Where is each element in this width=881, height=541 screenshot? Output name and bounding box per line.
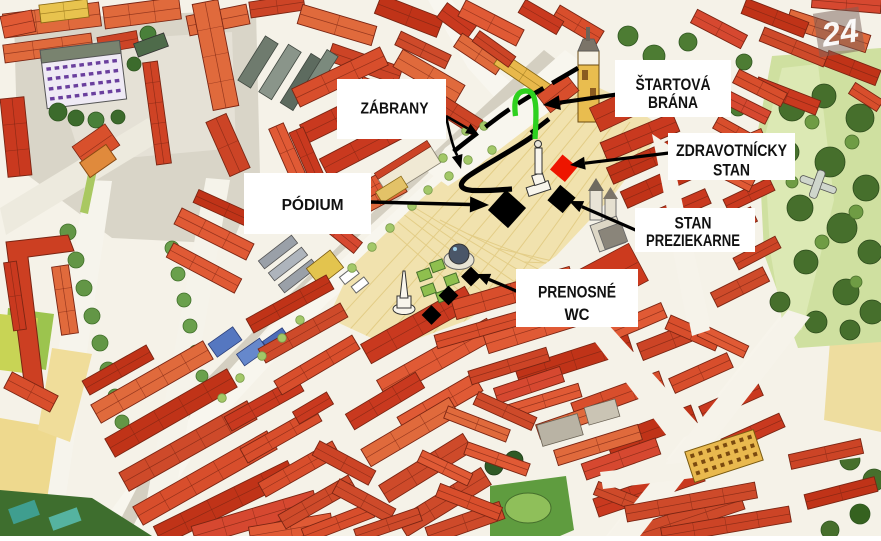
svg-text:ZDRAVOTNÍCKY: ZDRAVOTNÍCKY [676,141,788,160]
svg-text:ZÁBRANY: ZÁBRANY [361,101,430,118]
svg-text:24: 24 [818,11,861,53]
svg-text:PÓDIUM: PÓDIUM [282,196,344,214]
svg-text:STAN: STAN [675,213,712,232]
svg-text:ŠTARTOVÁ: ŠTARTOVÁ [636,75,711,94]
svg-text:PREZIEKARNE: PREZIEKARNE [646,231,740,250]
svg-text:WC: WC [565,305,590,324]
svg-text:PRENOSNÉ: PRENOSNÉ [538,283,616,302]
svg-text:BRÁNA: BRÁNA [648,93,698,112]
svg-text:STAN: STAN [713,161,750,180]
